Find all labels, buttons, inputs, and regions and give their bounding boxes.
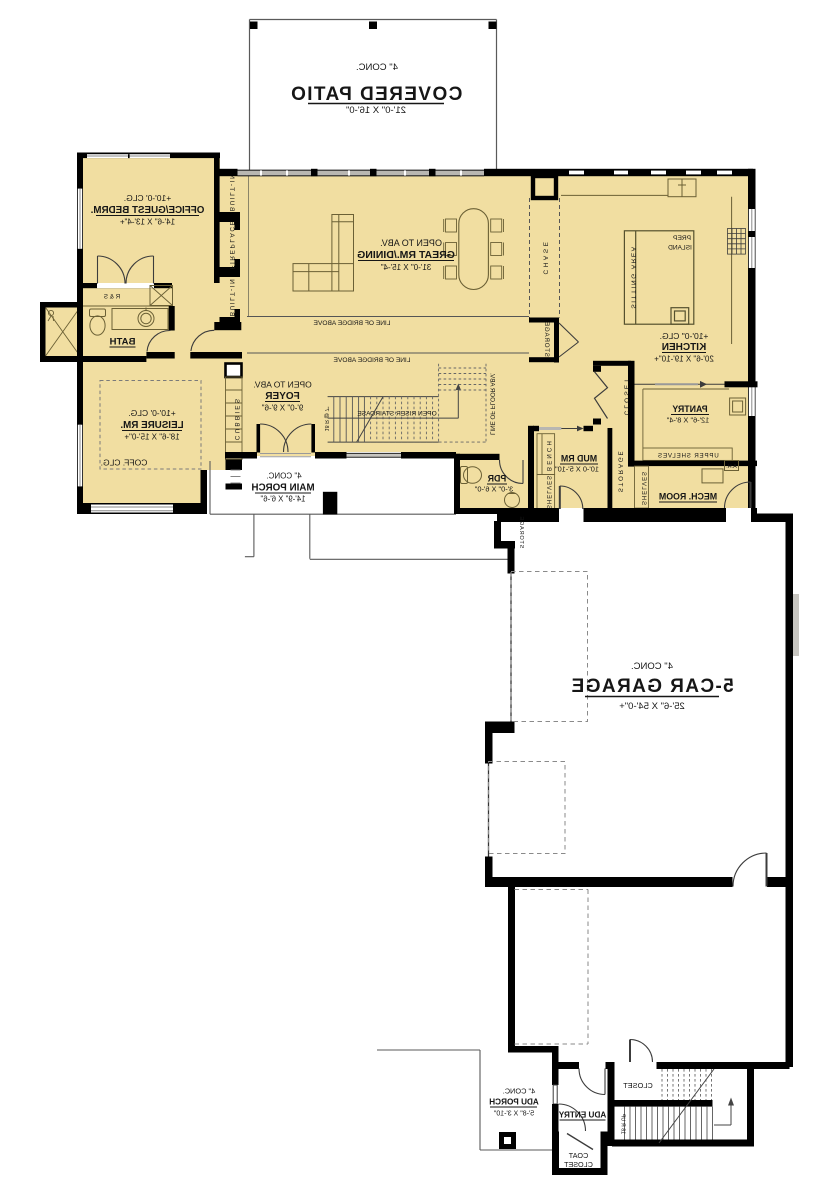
svg-text:5'-8" X 3'-10": 5'-8" X 3'-10" bbox=[493, 1111, 534, 1118]
svg-text:CHASE: CHASE bbox=[542, 239, 549, 274]
svg-text:LEISURE RM.: LEISURE RM. bbox=[120, 420, 183, 431]
svg-text:CLOSET: CLOSET bbox=[623, 1081, 653, 1090]
svg-text:+10'-0' CLG.: +10'-0' CLG. bbox=[128, 408, 175, 418]
svg-text:UPPER SHELVES: UPPER SHELVES bbox=[657, 453, 719, 460]
svg-text:SITTING AREA: SITTING AREA bbox=[630, 245, 637, 308]
svg-text:12'-6" X 8'-4": 12'-6" X 8'-4" bbox=[666, 416, 709, 425]
svg-text:PANTRY: PANTRY bbox=[672, 404, 707, 414]
svg-text:OPEN TO ABV.: OPEN TO ABV. bbox=[253, 380, 311, 390]
svg-text:25'-6" X 54'-0"+: 25'-6" X 54'-0"+ bbox=[619, 701, 685, 712]
svg-text:+10'-0' CLG.: +10'-0' CLG. bbox=[124, 193, 171, 203]
svg-text:FIREPLACE: FIREPLACE bbox=[228, 220, 235, 270]
svg-text:KITCHEN: KITCHEN bbox=[662, 342, 706, 353]
svg-text:9'-0" X 9'-6": 9'-0" X 9'-6" bbox=[262, 404, 304, 413]
svg-text:LINE OF BRIDGE ABOVE: LINE OF BRIDGE ABOVE bbox=[313, 320, 391, 327]
svg-text:10'-0 X 5'-10": 10'-0 X 5'-10" bbox=[555, 465, 599, 474]
svg-text:3'-0" X 6'-0": 3'-0" X 6'-0" bbox=[474, 485, 513, 494]
svg-text:MAIN PORCH: MAIN PORCH bbox=[251, 483, 314, 494]
svg-text:MUD RM: MUD RM bbox=[561, 454, 597, 464]
svg-text:ADU ENTRY: ADU ENTRY bbox=[558, 1111, 606, 1120]
svg-text:SHELVES: SHELVES bbox=[640, 471, 646, 505]
svg-text:BATH: BATH bbox=[109, 337, 135, 348]
svg-text:GREAT RM./DINING: GREAT RM./DINING bbox=[357, 249, 455, 261]
svg-text:OFFICE/GUEST BEDRM.: OFFICE/GUEST BEDRM. bbox=[90, 205, 204, 216]
svg-text:4" CONC.: 4" CONC. bbox=[266, 472, 301, 481]
svg-text:SHELVES: SHELVES bbox=[545, 475, 551, 509]
svg-text:FOYER: FOYER bbox=[265, 391, 300, 402]
svg-text:4" CONC.: 4" CONC. bbox=[356, 62, 398, 73]
svg-text:OPEN TO ABV.: OPEN TO ABV. bbox=[380, 238, 442, 248]
svg-text:BUILT-IN: BUILT-IN bbox=[228, 278, 235, 317]
svg-text:5-CAR GARAGE: 5-CAR GARAGE bbox=[570, 676, 734, 697]
svg-text:CLOSET: CLOSET bbox=[564, 1160, 593, 1169]
svg-text:STORAGE: STORAGE bbox=[518, 516, 524, 549]
svg-text:COFF. CLG.: COFF. CLG. bbox=[101, 458, 148, 468]
svg-text:COVERED PATIO: COVERED PATIO bbox=[290, 84, 463, 105]
svg-text:BENCH: BENCH bbox=[545, 439, 551, 471]
svg-text:A.H.: A.H. bbox=[726, 464, 736, 470]
svg-text:COAT: COAT bbox=[568, 1151, 588, 1160]
svg-text:R & S: R & S bbox=[104, 294, 120, 301]
svg-text:STORAGE: STORAGE bbox=[617, 450, 624, 493]
svg-text:21'-0" X 16'-0": 21'-0" X 16'-0" bbox=[346, 105, 406, 116]
svg-text:OPEN RISER STAIRCASE: OPEN RISER STAIRCASE bbox=[357, 411, 437, 418]
svg-text:LINE OF FLOOR ABV.: LINE OF FLOOR ABV. bbox=[489, 373, 496, 435]
svg-text:PREP: PREP bbox=[672, 235, 691, 242]
svg-text:STORAGE: STORAGE bbox=[543, 321, 550, 357]
svg-text:LINE OF BRIDGE ABOVE: LINE OF BRIDGE ABOVE bbox=[333, 357, 411, 364]
svg-text:14'-6" X 13'-4"+: 14'-6" X 13'-4"+ bbox=[120, 218, 176, 227]
svg-text:20'-6" X 19'-10"+: 20'-6" X 19'-10"+ bbox=[654, 355, 714, 364]
svg-text:18 R UP: 18 R UP bbox=[620, 1113, 626, 1134]
svg-text:ADU PORCH: ADU PORCH bbox=[489, 1098, 539, 1107]
svg-text:BUILT-IN: BUILT-IN bbox=[228, 173, 235, 212]
svg-text:+10'-0" CLG.: +10'-0" CLG. bbox=[660, 331, 709, 341]
svg-text:18 R @ 7": 18 R @ 7" bbox=[323, 407, 329, 432]
svg-text:31'-0" X 15'-4": 31'-0" X 15'-4" bbox=[381, 263, 432, 272]
svg-text:18'-6" X 15'-0"+: 18'-6" X 15'-0"+ bbox=[124, 433, 180, 442]
svg-text:PDR: PDR bbox=[487, 474, 506, 484]
svg-text:14'-9" X 6'-6": 14'-9" X 6'-6" bbox=[260, 495, 305, 504]
svg-text:MECH. ROOM: MECH. ROOM bbox=[659, 492, 717, 502]
svg-text:4" CONC.: 4" CONC. bbox=[503, 1087, 536, 1096]
svg-text:CUBBIES: CUBBIES bbox=[233, 397, 240, 440]
svg-text:ISLAND: ISLAND bbox=[668, 245, 692, 252]
svg-text:4" CONC.: 4" CONC. bbox=[631, 661, 673, 672]
